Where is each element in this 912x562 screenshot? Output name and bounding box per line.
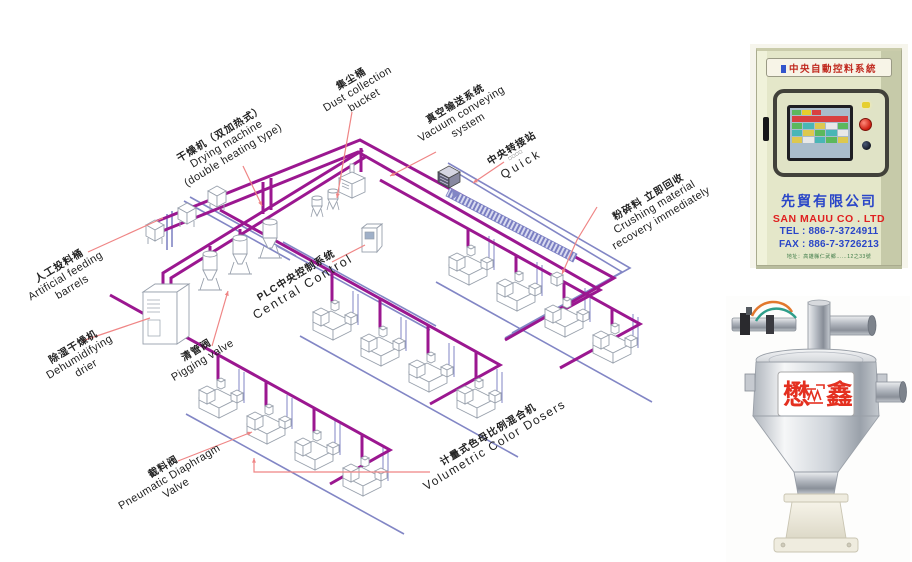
dust-cyclone <box>311 196 323 217</box>
feeding-barrel <box>146 220 164 244</box>
screen-button <box>802 110 811 115</box>
side-inlet-tube <box>876 382 907 403</box>
molding-machine <box>247 404 291 444</box>
molding-machine <box>313 300 357 340</box>
cabinet-banner: 中央自動控料系統 <box>766 58 892 77</box>
clamp-left <box>745 374 755 391</box>
screen-cell <box>815 130 825 136</box>
molding-machine <box>295 430 339 470</box>
screen-cell <box>792 137 802 143</box>
molding-machine <box>343 456 387 496</box>
molding-machine <box>199 378 243 418</box>
brand-plate: 懋 鑫 <box>778 372 854 416</box>
molding-machine <box>361 326 405 366</box>
cabinet-banner-text: 中央自動控料系統 <box>789 64 877 75</box>
touchscreen <box>787 105 853 161</box>
crusher-unit <box>551 272 563 286</box>
screen-cell <box>792 123 802 129</box>
indicator-led-icon <box>862 102 870 108</box>
company-name-cn: 先貿有限公司 <box>757 191 901 211</box>
screen-cell <box>803 123 813 129</box>
molding-machine <box>449 245 493 285</box>
base-stand <box>774 494 858 552</box>
screen-banner <box>792 116 848 122</box>
screen-cell <box>792 130 802 136</box>
dryer-hopper <box>258 219 282 258</box>
molding-machine <box>409 352 453 392</box>
control-cabinet-photo: 中央自動控料系統 先貿有限公司 SAN MAUU CO . LTD TEL : … <box>750 44 908 268</box>
company-fax: FAX : 886-7-3726213 <box>757 238 901 251</box>
dust-cyclone <box>327 189 339 210</box>
pneumatic-actuator <box>732 302 796 335</box>
dehumidifying-dryer <box>143 284 189 344</box>
screen-button <box>812 110 821 115</box>
screen-cell <box>826 137 836 143</box>
company-address: 地址：高雄縣仁武鄉……12之33號 <box>757 253 901 260</box>
screen-cell <box>815 123 825 129</box>
screen-button <box>792 110 801 115</box>
inlet-pipe <box>808 300 876 356</box>
screen-cell <box>838 137 848 143</box>
control-panel <box>773 89 889 177</box>
plc-control-box <box>362 224 382 252</box>
company-tel: TEL : 886-7-3724911 <box>757 225 901 238</box>
screen-cell <box>826 130 836 136</box>
screenshot-root: 人工投料桶 Artificial feeding barrels 干燥机（双加热… <box>0 0 912 562</box>
screen-cell <box>826 123 836 129</box>
molding-machine <box>497 271 541 311</box>
molding-machine <box>545 297 589 337</box>
screen-cell <box>803 130 813 136</box>
banner-logo-icon <box>781 65 786 73</box>
screen-cell <box>803 137 813 143</box>
hopper-cone <box>753 416 879 472</box>
brand-char-left: 懋 <box>783 380 810 411</box>
hopper-loader: 懋 鑫 <box>726 296 910 562</box>
dryer-hopper <box>198 251 222 290</box>
red-lamp-icon <box>859 118 872 131</box>
company-name-en: SAN MAUU CO . LTD <box>757 213 901 225</box>
cabinet-company-block: 先貿有限公司 SAN MAUU CO . LTD TEL : 886-7-372… <box>757 191 901 260</box>
touchscreen-display <box>790 108 850 158</box>
control-cabinet: 中央自動控料系統 先貿有限公司 SAN MAUU CO . LTD TEL : … <box>756 48 902 266</box>
screen-cell <box>838 130 848 136</box>
discharge-neck <box>794 472 838 494</box>
power-button-icon <box>862 141 871 150</box>
brand-char-right: 鑫 <box>826 379 853 411</box>
vacuum-hopper-loader-photo: 懋 鑫 <box>726 296 910 562</box>
screen-cell <box>815 137 825 143</box>
door-handle-icon <box>763 117 769 141</box>
screen-cell <box>838 123 848 129</box>
